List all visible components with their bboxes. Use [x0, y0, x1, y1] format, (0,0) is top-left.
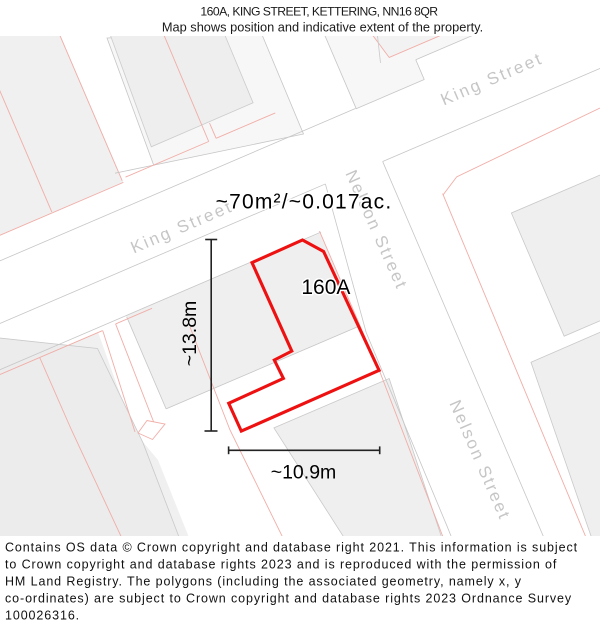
svg-text:~70m²/~0.017ac.: ~70m²/~0.017ac.	[216, 191, 393, 214]
svg-text:to Crown copyright and databas: to Crown copyright and database rights 2…	[5, 558, 557, 572]
svg-text:Map shows position and indicat: Map shows position and indicative extent…	[162, 20, 483, 35]
svg-text:~13.8m: ~13.8m	[179, 301, 201, 367]
svg-text:160A: 160A	[301, 276, 350, 299]
svg-text:100026316.: 100026316.	[5, 609, 80, 623]
svg-text:160A, KING STREET, KETTERING,: 160A, KING STREET, KETTERING, NN16 8QR	[200, 5, 438, 19]
svg-text:HM Land Registry. The polygons: HM Land Registry. The polygons (includin…	[5, 575, 522, 589]
svg-text:Contains OS data © Crown copyr: Contains OS data © Crown copyright and d…	[5, 541, 578, 555]
svg-text:co-ordinates) are subject to C: co-ordinates) are subject to Crown copyr…	[5, 592, 572, 606]
svg-text:~10.9m: ~10.9m	[271, 462, 337, 484]
